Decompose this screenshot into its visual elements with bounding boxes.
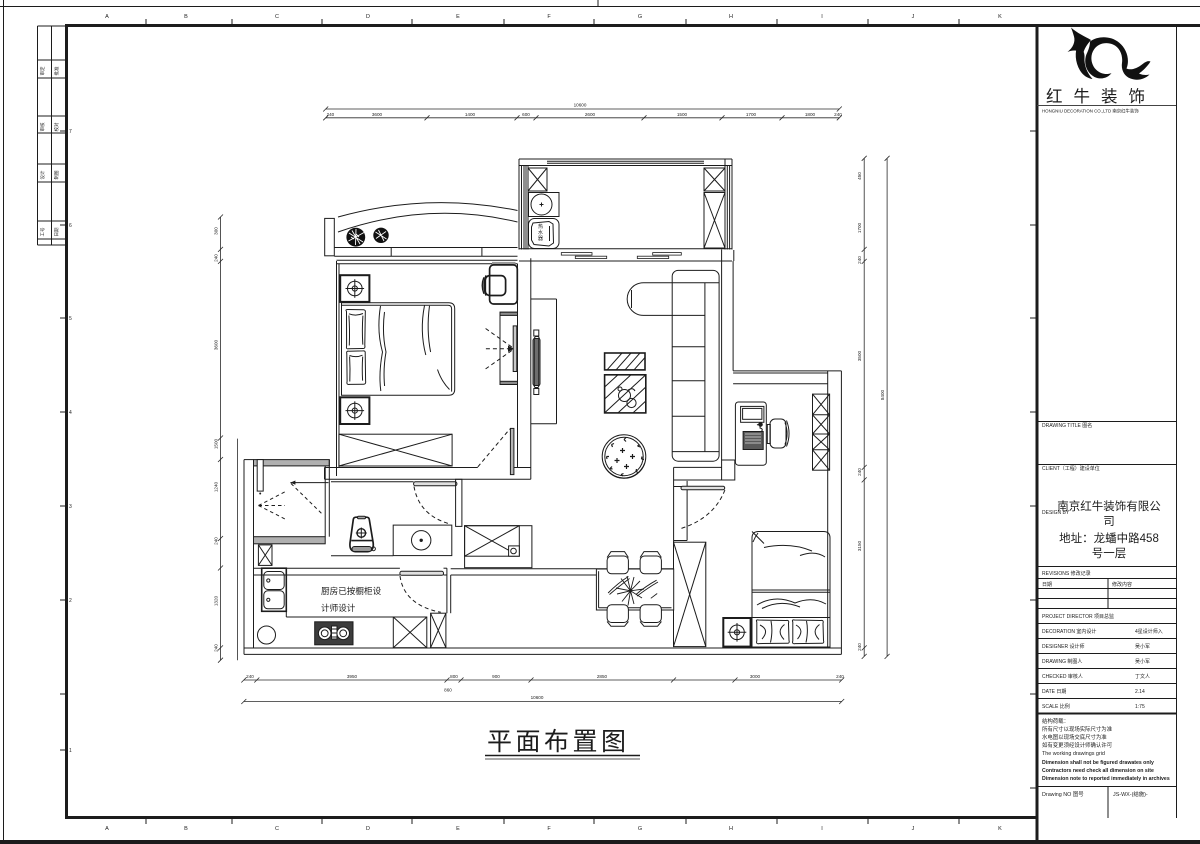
svg-text:4: 4 <box>69 410 72 416</box>
svg-text:审核: 审核 <box>39 122 46 131</box>
svg-text:平面布置图: 平面布置图 <box>487 728 630 756</box>
svg-text:REVISIONS 修改记录: REVISIONS 修改记录 <box>1042 570 1091 577</box>
svg-text:DRAWING TITLE 图名: DRAWING TITLE 图名 <box>1042 422 1092 429</box>
svg-text:7: 7 <box>69 129 72 135</box>
svg-text:240: 240 <box>857 468 862 476</box>
svg-text:2850: 2850 <box>597 674 608 679</box>
svg-text:如有变更须经设计师确认许可: 如有变更须经设计师确认许可 <box>1042 741 1113 749</box>
svg-text:红牛装饰: 红牛装饰 <box>1046 87 1156 106</box>
svg-text:DECORATION 室内设计: DECORATION 室内设计 <box>1042 628 1096 635</box>
svg-text:吴小军: 吴小军 <box>1135 643 1150 650</box>
svg-text:3150: 3150 <box>857 540 862 551</box>
svg-text:D: D <box>366 14 370 20</box>
svg-text:300: 300 <box>214 227 219 235</box>
svg-text:DATE 日期: DATE 日期 <box>1042 689 1066 695</box>
svg-text:司: 司 <box>1103 516 1115 528</box>
svg-text:CHECKED 审核人: CHECKED 审核人 <box>1042 673 1083 680</box>
svg-text:1320: 1320 <box>214 595 219 606</box>
svg-text:2.14: 2.14 <box>1135 689 1145 695</box>
svg-text:B: B <box>184 826 188 832</box>
svg-text:DRAWING 制图人: DRAWING 制图人 <box>1042 658 1082 665</box>
svg-text:I: I <box>821 826 823 832</box>
svg-text:600: 600 <box>522 112 530 117</box>
svg-text:DESIGNER 设计师: DESIGNER 设计师 <box>1042 643 1085 650</box>
svg-text:PROJECT DIRECTOR 项目总监: PROJECT DIRECTOR 项目总监 <box>1042 613 1114 620</box>
svg-text:C: C <box>275 826 279 832</box>
svg-text:F: F <box>547 826 551 832</box>
svg-text:所有尺寸以现场实际尺寸为准: 所有尺寸以现场实际尺寸为准 <box>1042 725 1113 733</box>
svg-text:1800: 1800 <box>805 112 816 117</box>
svg-text:K: K <box>998 14 1002 20</box>
svg-text:240: 240 <box>214 254 219 262</box>
svg-text:3950: 3950 <box>347 674 358 679</box>
svg-text:3000: 3000 <box>750 674 761 679</box>
svg-text:D: D <box>366 826 370 832</box>
svg-text:A: A <box>105 14 109 20</box>
svg-text:3600: 3600 <box>372 112 383 117</box>
svg-text:修改内容: 修改内容 <box>1112 581 1132 588</box>
svg-text:2: 2 <box>69 598 72 604</box>
svg-text:800: 800 <box>450 674 458 679</box>
svg-text:地址：龙蟠中路458: 地址：龙蟠中路458 <box>1059 531 1159 545</box>
svg-text:1700: 1700 <box>746 112 757 117</box>
svg-text:日期: 日期 <box>1042 582 1052 588</box>
svg-text:G: G <box>638 14 642 20</box>
svg-text:3: 3 <box>69 504 72 510</box>
svg-text:1: 1 <box>69 748 72 754</box>
svg-text:240: 240 <box>836 674 844 679</box>
svg-text:H: H <box>729 14 733 20</box>
svg-text:结构荷载：: 结构荷载： <box>1042 717 1069 725</box>
svg-text:制图: 制图 <box>53 170 60 179</box>
svg-text:Drawing NO 图号: Drawing NO 图号 <box>1042 790 1084 798</box>
svg-text:热: 热 <box>538 223 543 230</box>
svg-text:校对: 校对 <box>53 122 60 131</box>
svg-text:900: 900 <box>492 674 500 679</box>
svg-text:1240: 1240 <box>214 481 219 492</box>
svg-text:240: 240 <box>327 112 335 117</box>
svg-text:240: 240 <box>857 643 862 651</box>
svg-text:丁文人: 丁文人 <box>1135 673 1150 680</box>
svg-text:240: 240 <box>246 674 254 679</box>
svg-text:南京红牛装饰有限公: 南京红牛装饰有限公 <box>1057 499 1161 513</box>
svg-text:10600: 10600 <box>574 103 587 108</box>
svg-text:4星设计师入: 4星设计师入 <box>1135 628 1163 635</box>
svg-text:240: 240 <box>214 644 219 652</box>
svg-text:240: 240 <box>214 537 219 545</box>
svg-text:860: 860 <box>444 688 452 693</box>
svg-text:240: 240 <box>857 256 862 264</box>
svg-text:1700: 1700 <box>857 222 862 233</box>
svg-text:审定: 审定 <box>39 66 46 75</box>
svg-text:E: E <box>456 826 460 832</box>
svg-text:Dimension note to reported imm: Dimension note to reported immediately i… <box>1042 776 1170 782</box>
svg-text:设计: 设计 <box>39 170 46 179</box>
svg-text:工号: 工号 <box>40 227 46 236</box>
svg-text:Dimension shall not be figured: Dimension shall not be figured drawates … <box>1042 760 1154 766</box>
svg-text:H: H <box>729 826 733 832</box>
svg-text:450: 450 <box>857 172 862 180</box>
svg-text:号一层: 号一层 <box>1092 547 1127 560</box>
svg-text:日期: 日期 <box>54 227 60 236</box>
svg-text:5: 5 <box>69 316 72 322</box>
svg-text:B: B <box>184 14 188 20</box>
svg-text:吴小军: 吴小军 <box>1135 658 1150 665</box>
svg-text:厨房已按橱柜设: 厨房已按橱柜设 <box>321 585 382 596</box>
svg-text:J: J <box>912 826 915 832</box>
svg-text:CLIENT（工程）建设单位: CLIENT（工程）建设单位 <box>1042 465 1100 472</box>
svg-text:HONGNIU DECORATION CO.,LTD 南京红: HONGNIU DECORATION CO.,LTD 南京红牛装饰 <box>1042 108 1139 115</box>
svg-text:计师设计: 计师设计 <box>321 602 356 613</box>
svg-text:10600: 10600 <box>531 695 544 700</box>
svg-text:6: 6 <box>69 223 72 229</box>
svg-text:I: I <box>821 14 823 20</box>
svg-text:K: K <box>998 826 1002 832</box>
svg-text:批准: 批准 <box>53 66 60 75</box>
svg-text:J: J <box>912 14 915 20</box>
svg-text:C: C <box>275 14 279 20</box>
svg-text:F: F <box>547 14 551 20</box>
svg-text:2600: 2600 <box>585 112 596 117</box>
svg-text:1400: 1400 <box>465 112 476 117</box>
svg-text:水电图以现场交底尺寸为准: 水电图以现场交底尺寸为准 <box>1042 733 1107 741</box>
svg-text:G: G <box>638 826 642 832</box>
svg-text:E: E <box>456 14 460 20</box>
svg-text:240: 240 <box>834 112 842 117</box>
svg-text:1500: 1500 <box>677 112 688 117</box>
svg-text:器: 器 <box>538 236 543 242</box>
svg-text:A: A <box>105 826 109 832</box>
svg-text:1:75: 1:75 <box>1135 704 1145 710</box>
svg-text:SCALE 比例: SCALE 比例 <box>1042 703 1070 710</box>
svg-text:3600: 3600 <box>214 339 219 350</box>
svg-text:JS-WX-(结施)-: JS-WX-(结施)- <box>1113 790 1148 798</box>
svg-text:1500: 1500 <box>214 438 219 449</box>
svg-text:3500: 3500 <box>857 350 862 361</box>
svg-text:The working drawings grid: The working drawings grid <box>1042 751 1105 757</box>
svg-text:Contractors need check all dim: Contractors need check all dimension on … <box>1042 768 1154 774</box>
svg-text:8400: 8400 <box>880 389 885 400</box>
svg-text:水: 水 <box>538 229 543 236</box>
